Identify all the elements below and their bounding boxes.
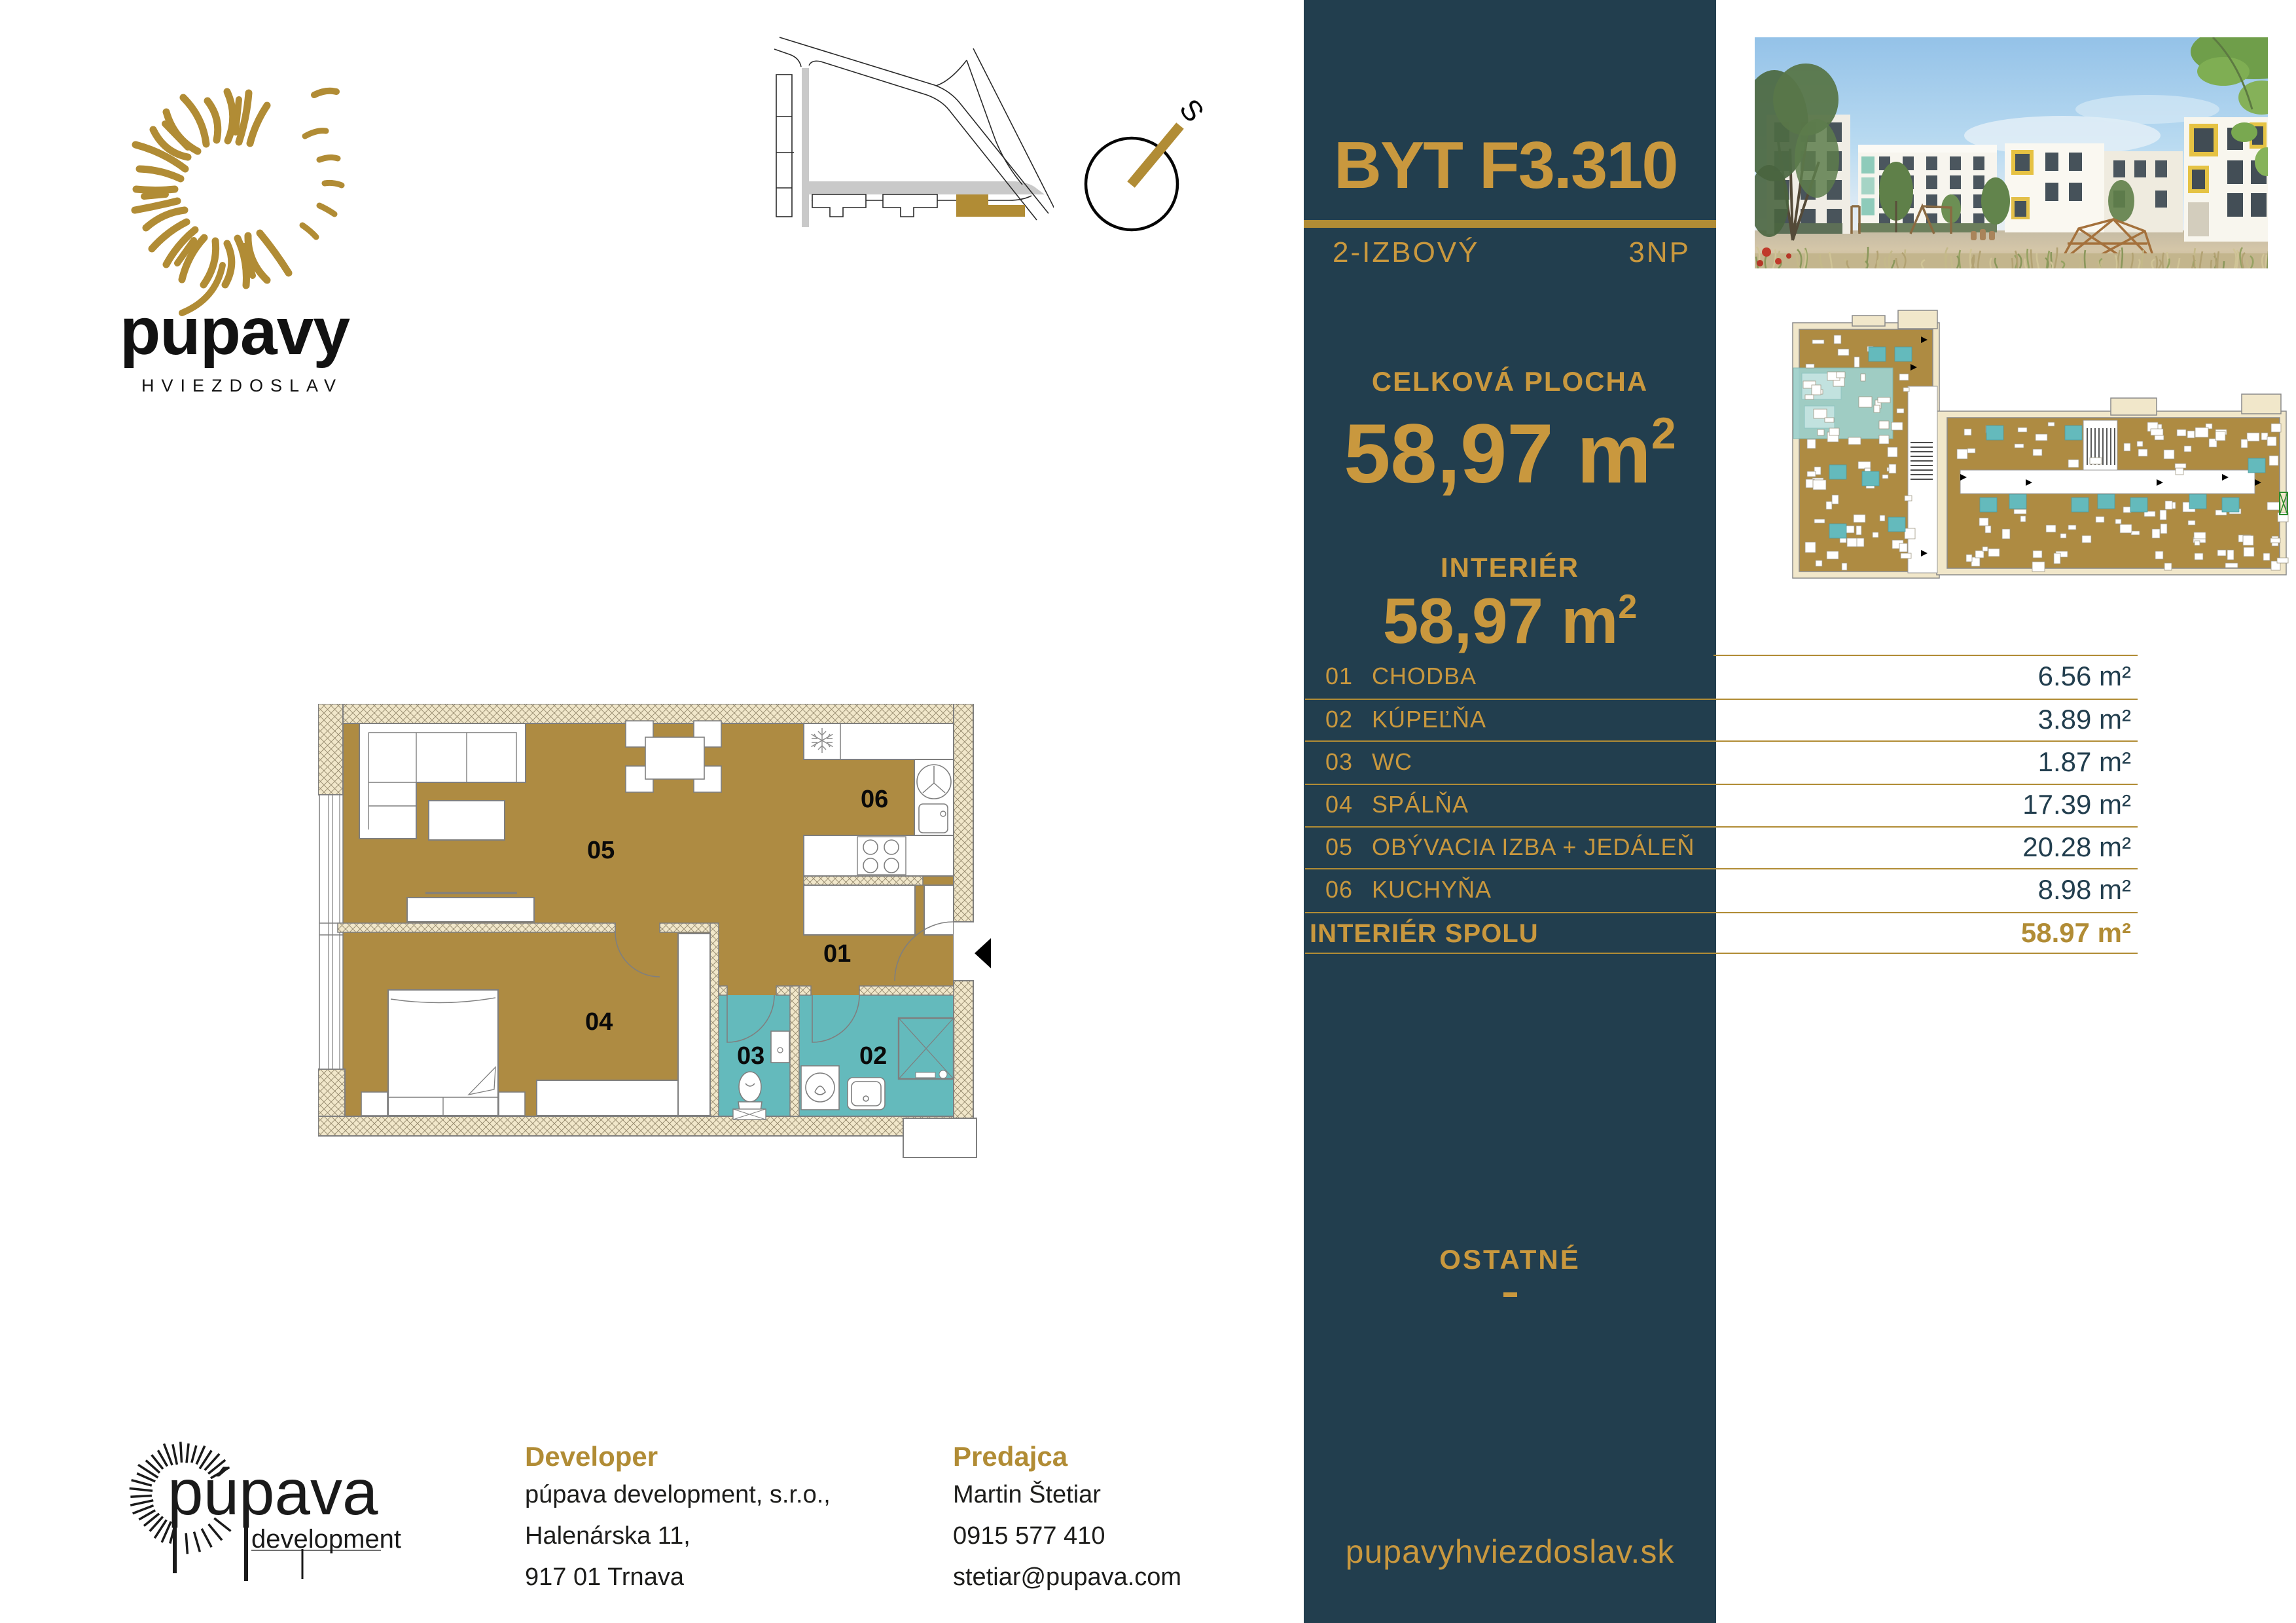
svg-text:01: 01 <box>823 940 851 968</box>
svg-text:04: 04 <box>585 1008 613 1036</box>
svg-text:púpava: púpava <box>168 1456 378 1528</box>
svg-text:05: 05 <box>587 837 615 864</box>
svg-text:03: 03 <box>737 1042 764 1070</box>
svg-text:S: S <box>1173 93 1210 128</box>
svg-text:development: development <box>251 1525 401 1554</box>
svg-text:06: 06 <box>861 786 888 813</box>
svg-text:02: 02 <box>859 1042 887 1070</box>
